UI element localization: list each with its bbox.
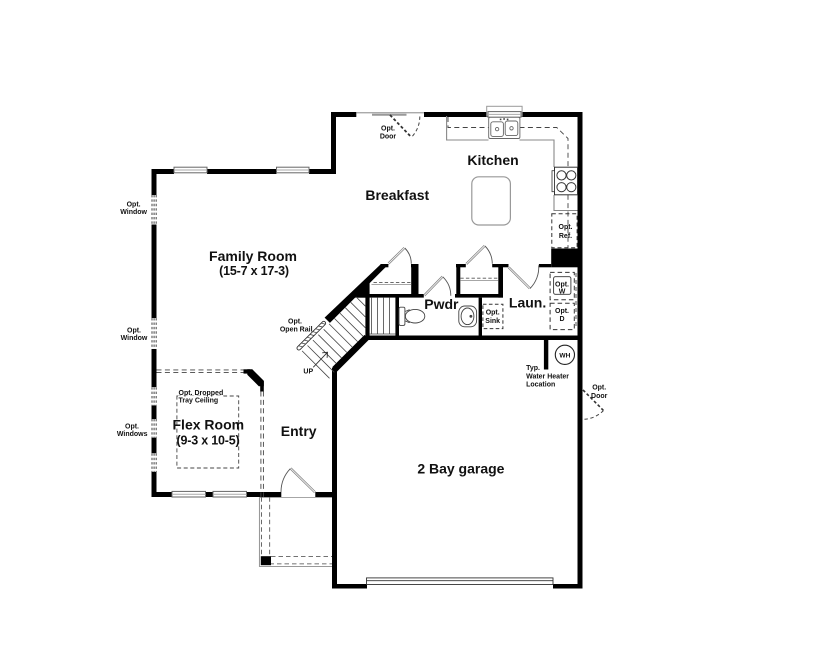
svg-text:Opt.: Opt. — [486, 310, 500, 317]
svg-text:Flex Room: Flex Room — [173, 417, 245, 433]
svg-text:Window: Window — [121, 335, 148, 342]
svg-text:Window: Window — [120, 209, 147, 216]
svg-text:Opt.: Opt. — [127, 201, 141, 208]
svg-text:Ref.: Ref. — [559, 233, 572, 240]
svg-text:Opt.: Opt. — [592, 385, 606, 392]
svg-text:WH: WH — [559, 352, 570, 359]
svg-text:Kitchen: Kitchen — [467, 152, 518, 168]
svg-text:Breakfast: Breakfast — [365, 187, 429, 203]
svg-text:Entry: Entry — [281, 423, 317, 439]
svg-text:Pwdr: Pwdr — [424, 296, 459, 312]
svg-text:Tray Ceiling: Tray Ceiling — [179, 398, 219, 405]
svg-text:Open Rail: Open Rail — [280, 326, 313, 333]
svg-text:UP: UP — [303, 369, 313, 376]
svg-text:Typ.: Typ. — [526, 365, 540, 372]
svg-text:Family Room: Family Room — [209, 248, 297, 264]
svg-text:Door: Door — [591, 393, 608, 400]
svg-text:Laun.: Laun. — [509, 295, 546, 311]
svg-text:Sink: Sink — [485, 318, 500, 325]
svg-text:(15-7 x 17-3): (15-7 x 17-3) — [219, 264, 289, 278]
svg-text:(9-3 x 10-5): (9-3 x 10-5) — [177, 433, 240, 447]
svg-text:Location: Location — [526, 381, 555, 388]
svg-text:Water Heater: Water Heater — [526, 373, 569, 380]
svg-text:Opt.: Opt. — [559, 224, 573, 231]
svg-text:Opt.: Opt. — [125, 423, 139, 430]
svg-text:Opt.: Opt. — [555, 308, 569, 315]
svg-text:Opt.: Opt. — [127, 328, 141, 335]
svg-text:Opt.: Opt. — [381, 125, 395, 132]
svg-text:Opt.: Opt. — [555, 281, 569, 288]
svg-text:Door: Door — [380, 133, 397, 140]
svg-text:Opt.: Opt. — [288, 319, 302, 326]
svg-text:2 Bay garage: 2 Bay garage — [417, 460, 504, 476]
svg-text:Windows: Windows — [117, 431, 148, 438]
svg-text:Opt. Dropped: Opt. Dropped — [179, 390, 224, 397]
svg-text:D: D — [559, 316, 564, 323]
svg-text:W: W — [559, 289, 566, 296]
